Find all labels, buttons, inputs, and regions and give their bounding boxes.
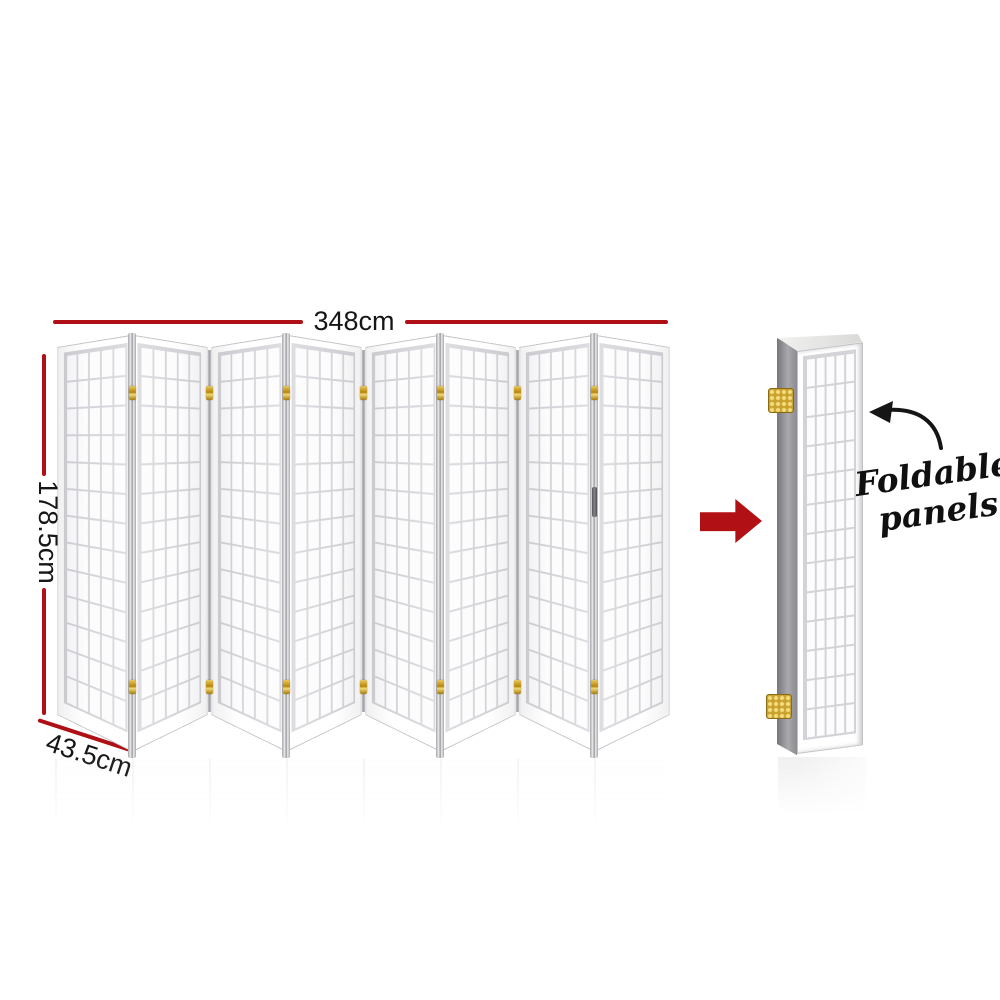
width-dimension-line-left xyxy=(53,320,303,324)
screen-panel-7 xyxy=(519,334,597,753)
hinge-icon xyxy=(514,680,521,694)
folded-stack-front xyxy=(797,342,863,754)
hinge-icon xyxy=(591,680,598,694)
panel-grid xyxy=(803,349,856,740)
hinge-icon xyxy=(360,386,367,400)
foldable-panels-callout: Foldable panels xyxy=(852,444,1000,561)
screen-panel-2 xyxy=(129,334,207,753)
hinge-icon xyxy=(129,680,136,694)
screen-panel-4 xyxy=(283,334,361,753)
screen-panel-3 xyxy=(211,334,289,753)
screen-panel-1 xyxy=(57,334,135,753)
hinge-icon xyxy=(766,694,792,719)
hinge-icon xyxy=(591,386,598,400)
panel-grid xyxy=(292,343,356,733)
hinge-icon xyxy=(283,386,290,400)
panel-grid xyxy=(372,343,436,733)
hinge-icon xyxy=(437,386,444,400)
panel-grid xyxy=(138,343,202,733)
panel-grid xyxy=(600,343,664,733)
height-dimension-line-bottom xyxy=(42,588,46,715)
panel-grid xyxy=(526,343,590,733)
hinge-icon xyxy=(437,680,444,694)
valley-joint xyxy=(208,350,211,712)
curved-arrow-icon xyxy=(857,396,949,458)
screen-panel-5 xyxy=(365,334,443,753)
panel-grid xyxy=(218,343,282,733)
screen-panel-8 xyxy=(591,334,669,753)
latch-bar xyxy=(592,487,597,517)
hinge-icon xyxy=(206,680,213,694)
valley-joint xyxy=(516,350,519,712)
screen-panel-6 xyxy=(437,334,515,753)
hinge-icon xyxy=(129,386,136,400)
panel-grid xyxy=(446,343,510,733)
product-dimension-diagram: 348cm 178.5cm 43.5cm Foldable panels xyxy=(0,0,1000,1000)
hinge-icon xyxy=(360,680,367,694)
screen-reflection xyxy=(55,759,671,839)
valley-joint xyxy=(362,350,365,712)
width-dimension-line-right xyxy=(405,320,668,324)
hinge-icon xyxy=(283,680,290,694)
unfolded-screen xyxy=(55,337,671,757)
hinge-icon xyxy=(206,386,213,400)
panel-grid xyxy=(64,343,128,733)
hinge-icon xyxy=(768,388,794,413)
hinge-icon xyxy=(514,386,521,400)
right-arrow-icon xyxy=(700,499,762,543)
width-dimension-label: 348cm xyxy=(300,306,408,337)
folded-stack-reflection xyxy=(778,757,866,821)
height-dimension-line-top xyxy=(42,354,46,476)
